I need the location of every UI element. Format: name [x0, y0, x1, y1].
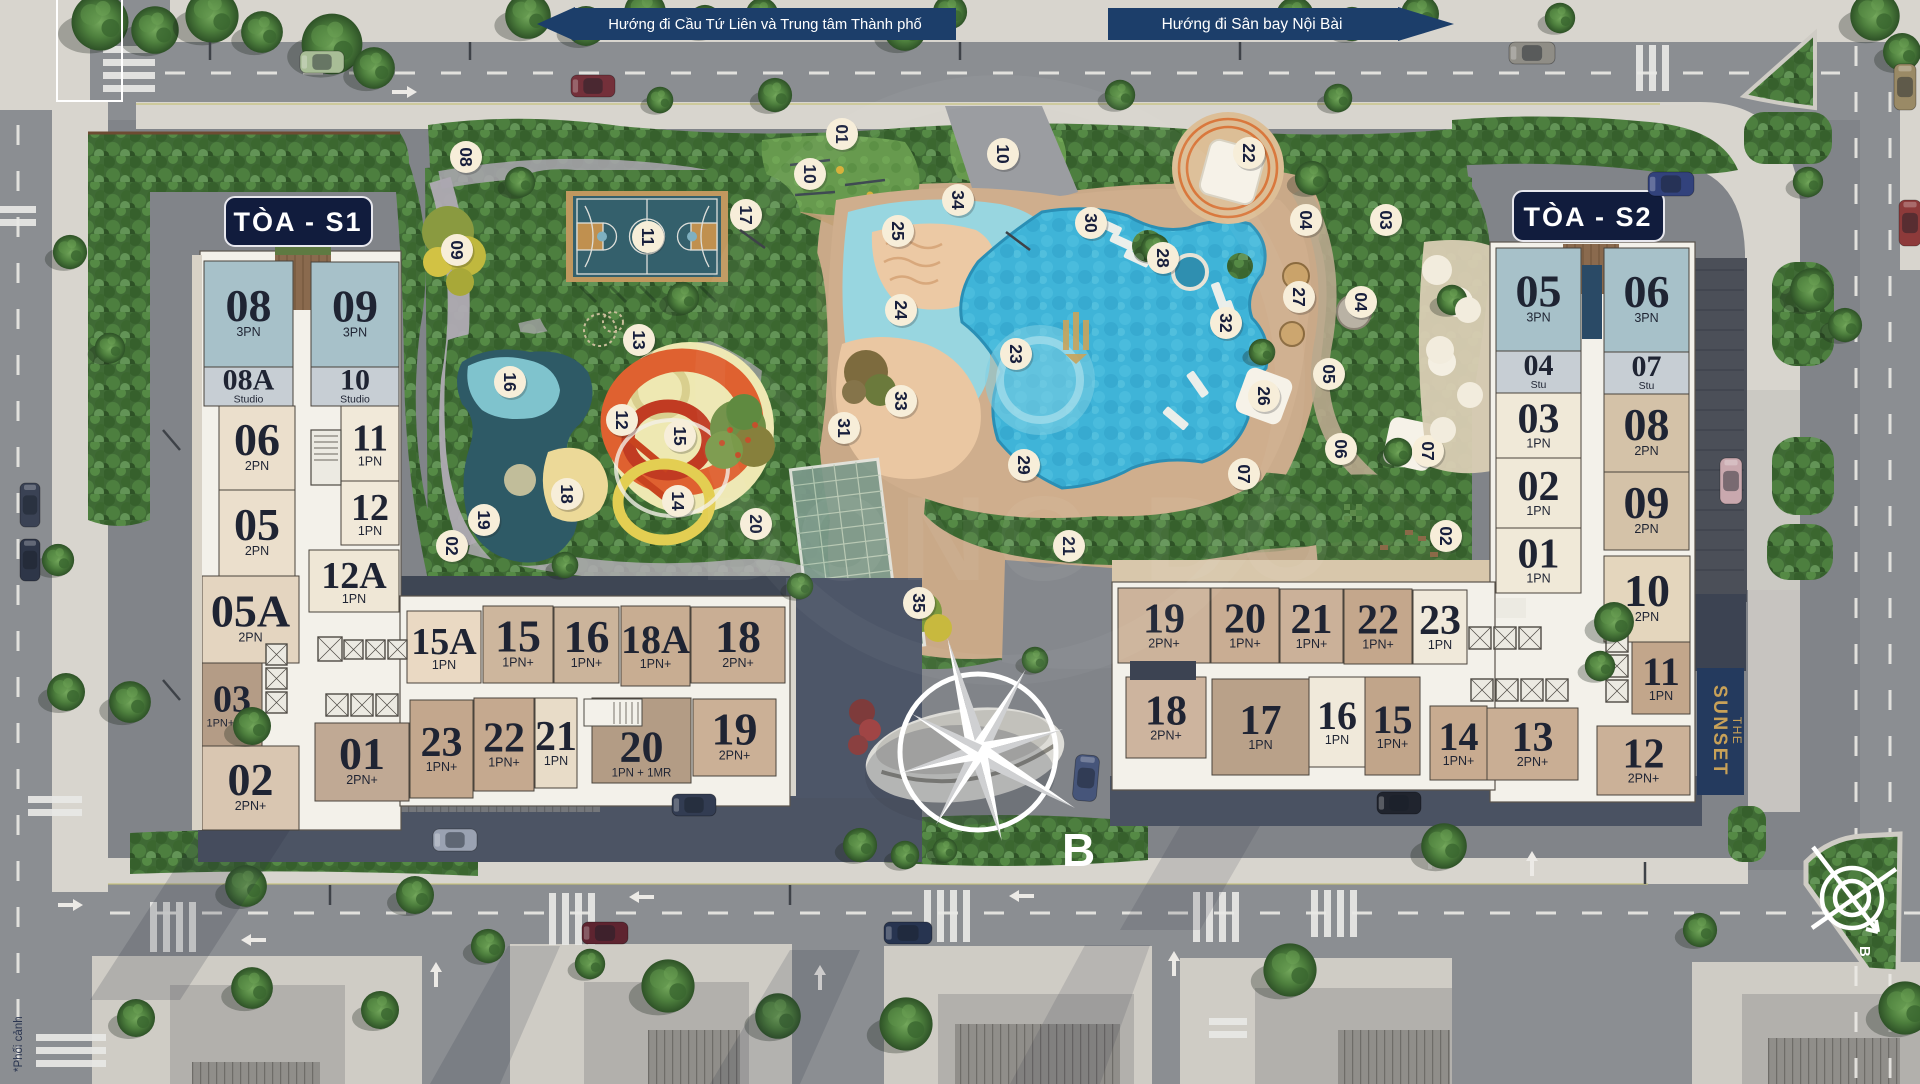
svg-text:2PN: 2PN — [238, 631, 262, 645]
svg-text:24: 24 — [891, 300, 911, 320]
svg-text:2PN: 2PN — [245, 459, 269, 473]
svg-text:1PN: 1PN — [432, 658, 456, 672]
svg-text:13: 13 — [629, 330, 649, 350]
svg-text:15: 15 — [670, 426, 690, 446]
svg-text:10: 10 — [993, 144, 1013, 164]
svg-text:05A: 05A — [211, 586, 290, 637]
svg-text:1PN: 1PN — [544, 754, 568, 768]
svg-text:1PN+: 1PN+ — [1362, 638, 1394, 652]
svg-text:04: 04 — [1524, 349, 1554, 382]
svg-text:09: 09 — [332, 281, 378, 332]
svg-text:1PN: 1PN — [1428, 638, 1452, 652]
svg-text:10: 10 — [1624, 565, 1670, 616]
svg-text:Studio: Studio — [234, 394, 264, 406]
svg-text:12: 12 — [351, 487, 389, 529]
svg-text:22: 22 — [1239, 143, 1259, 163]
svg-text:B: B — [1856, 946, 1873, 957]
svg-text:15: 15 — [495, 611, 541, 662]
svg-text:33: 33 — [891, 391, 911, 411]
svg-text:2PN: 2PN — [1635, 610, 1659, 624]
svg-text:1PN+: 1PN+ — [1229, 637, 1261, 651]
svg-text:B: B — [1062, 824, 1095, 876]
svg-text:18A: 18A — [621, 617, 690, 662]
svg-text:01: 01 — [339, 728, 385, 779]
svg-text:TÒA - S1: TÒA - S1 — [233, 206, 362, 237]
svg-text:THE: THE — [1730, 717, 1744, 746]
svg-text:07: 07 — [1418, 441, 1438, 460]
svg-text:1PN+: 1PN+ — [1443, 754, 1475, 768]
svg-text:Stu: Stu — [1531, 379, 1547, 391]
svg-text:18: 18 — [715, 611, 761, 662]
svg-text:Studio: Studio — [340, 394, 370, 406]
svg-text:07: 07 — [1632, 350, 1662, 383]
svg-text:TÒA - S2: TÒA - S2 — [1523, 201, 1652, 232]
svg-text:1PN+: 1PN+ — [1377, 737, 1409, 751]
svg-text:1PN+: 1PN+ — [488, 756, 520, 770]
svg-text:34: 34 — [948, 190, 968, 210]
svg-text:Stu: Stu — [1639, 380, 1655, 392]
svg-text:2PN: 2PN — [1634, 444, 1658, 458]
svg-text:2PN: 2PN — [1634, 522, 1658, 536]
svg-text:26: 26 — [1254, 386, 1274, 406]
svg-text:1PN: 1PN — [1325, 733, 1349, 747]
svg-text:04: 04 — [1351, 292, 1371, 312]
svg-text:20: 20 — [620, 723, 664, 772]
svg-text:25: 25 — [888, 221, 908, 241]
svg-text:08: 08 — [456, 147, 476, 167]
svg-text:08: 08 — [226, 280, 272, 331]
svg-text:11: 11 — [638, 228, 658, 247]
svg-text:16: 16 — [500, 372, 520, 392]
svg-text:10: 10 — [340, 364, 370, 397]
svg-text:02: 02 — [228, 754, 274, 805]
svg-text:Hướng đi Sân bay Nội Bài: Hướng đi Sân bay Nội Bài — [1162, 16, 1343, 33]
svg-text:05: 05 — [234, 499, 280, 550]
svg-text:SUNSET: SUNSET — [1709, 685, 1730, 777]
svg-text:15: 15 — [1373, 697, 1413, 742]
svg-text:05: 05 — [1319, 364, 1339, 384]
svg-text:2PN: 2PN — [245, 544, 269, 558]
svg-text:1PN+: 1PN+ — [640, 657, 672, 671]
svg-text:19: 19 — [712, 704, 758, 755]
svg-text:2PN+: 2PN+ — [1517, 755, 1549, 769]
svg-text:06: 06 — [234, 414, 280, 465]
svg-text:05: 05 — [1516, 266, 1562, 317]
svg-text:DONG DO: DONG DO — [700, 472, 1343, 606]
svg-text:2PN+: 2PN+ — [1150, 729, 1182, 743]
svg-text:11: 11 — [1642, 649, 1680, 694]
svg-text:19: 19 — [474, 510, 494, 530]
svg-text:1PN: 1PN — [358, 455, 382, 469]
svg-text:30: 30 — [1081, 213, 1101, 233]
svg-text:3PN: 3PN — [1526, 311, 1550, 325]
svg-text:1PN: 1PN — [1526, 504, 1550, 518]
svg-text:2PN+: 2PN+ — [346, 773, 378, 787]
svg-text:23: 23 — [1006, 344, 1026, 364]
svg-text:1PN: 1PN — [1526, 437, 1550, 451]
svg-text:12A: 12A — [321, 555, 387, 597]
svg-text:2PN+: 2PN+ — [719, 749, 751, 763]
svg-text:1PN: 1PN — [1649, 689, 1673, 703]
svg-text:16: 16 — [564, 611, 610, 662]
svg-text:18: 18 — [557, 484, 577, 504]
svg-text:1PN + 1MR: 1PN + 1MR — [612, 768, 672, 780]
svg-text:*Phối cảnh: *Phối cảnh — [13, 1016, 25, 1072]
svg-text:08: 08 — [1624, 399, 1670, 450]
svg-text:31: 31 — [834, 418, 854, 438]
svg-text:04: 04 — [1296, 210, 1316, 230]
svg-text:1PN: 1PN — [342, 592, 366, 606]
svg-text:1PN: 1PN — [1248, 738, 1272, 752]
svg-text:06: 06 — [1331, 439, 1351, 459]
svg-text:16: 16 — [1317, 693, 1357, 738]
svg-text:3PN: 3PN — [236, 325, 260, 339]
svg-text:14: 14 — [668, 491, 688, 511]
svg-text:2PN+: 2PN+ — [1628, 772, 1660, 786]
svg-text:09: 09 — [1624, 477, 1670, 528]
svg-text:Hướng đi Cầu Tứ Liên và Trung: Hướng đi Cầu Tứ Liên và Trung tâm Thành … — [608, 17, 922, 33]
svg-text:1PN: 1PN — [1526, 572, 1550, 586]
svg-text:1PN+: 1PN+ — [571, 656, 603, 670]
svg-text:2PN+: 2PN+ — [722, 656, 754, 670]
svg-text:32: 32 — [1216, 313, 1236, 333]
svg-text:3PN: 3PN — [1634, 311, 1658, 325]
svg-text:28: 28 — [1153, 248, 1173, 268]
svg-text:1PN: 1PN — [358, 524, 382, 538]
svg-text:1PN+: 1PN+ — [502, 656, 534, 670]
svg-text:3PN: 3PN — [343, 326, 367, 340]
svg-text:03: 03 — [1376, 210, 1396, 230]
svg-text:08A: 08A — [223, 364, 275, 397]
svg-text:2PN+: 2PN+ — [235, 799, 267, 813]
svg-text:1PN+: 1PN+ — [426, 760, 458, 774]
svg-text:02: 02 — [1436, 526, 1456, 546]
svg-text:02: 02 — [442, 536, 462, 556]
svg-text:09: 09 — [447, 240, 467, 260]
svg-text:15A: 15A — [411, 621, 477, 663]
svg-text:12: 12 — [612, 410, 632, 430]
svg-text:1PN+: 1PN+ — [1296, 637, 1328, 651]
svg-text:14: 14 — [1439, 714, 1479, 759]
svg-text:11: 11 — [352, 418, 388, 460]
svg-text:06: 06 — [1624, 266, 1670, 317]
